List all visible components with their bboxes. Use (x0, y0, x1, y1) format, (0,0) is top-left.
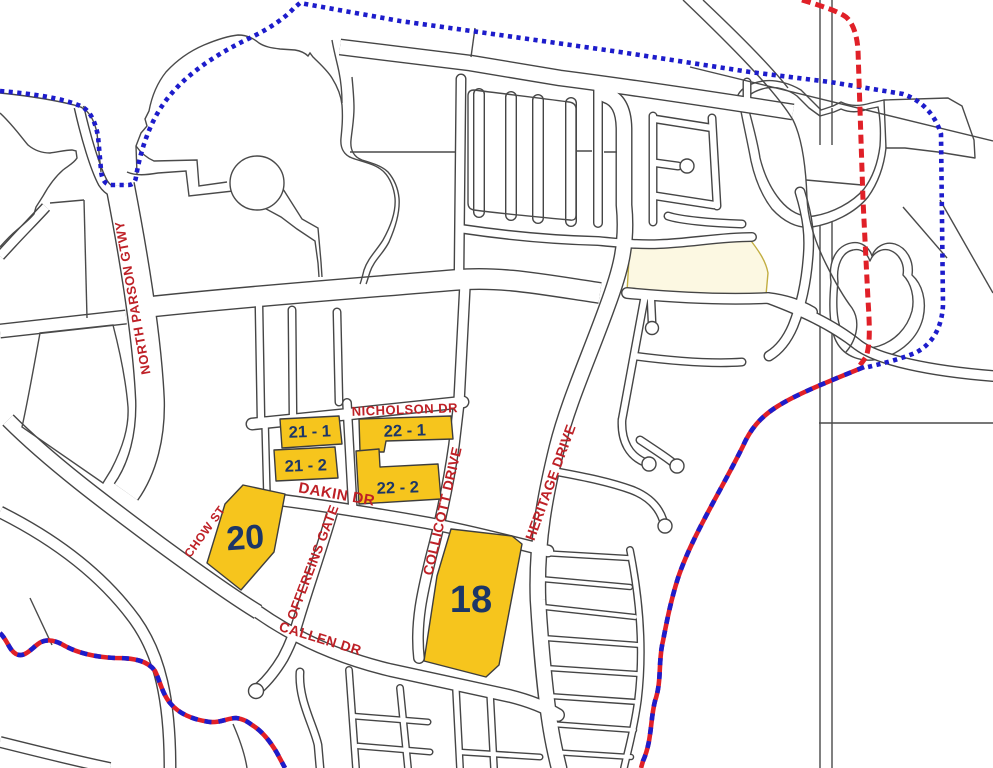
svg-text:21 - 1: 21 - 1 (288, 422, 331, 441)
svg-text:20: 20 (225, 518, 265, 559)
svg-text:21 - 2: 21 - 2 (284, 456, 327, 475)
svg-text:18: 18 (450, 579, 492, 621)
svg-text:22 - 2: 22 - 2 (376, 478, 419, 497)
svg-text:22 - 1: 22 - 1 (383, 421, 426, 440)
